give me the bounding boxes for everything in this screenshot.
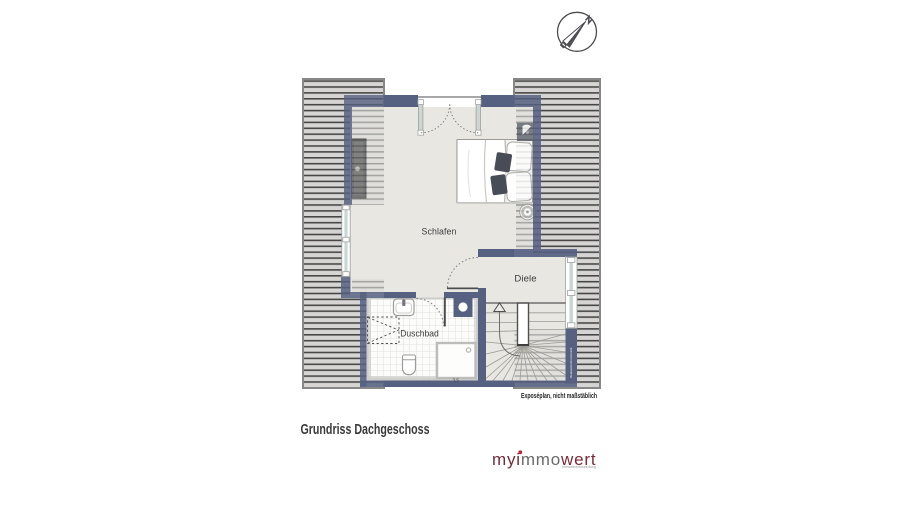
svg-text:Diele: Diele bbox=[514, 274, 536, 285]
svg-text:Schlafen: Schlafen bbox=[422, 227, 457, 238]
svg-text:Immobilienbewertung: Immobilienbewertung bbox=[562, 465, 596, 469]
svg-text:RealisationImmoGrafik: RealisationImmoGrafik bbox=[569, 347, 573, 378]
svg-text:Exposéplan, nicht maßstäblich: Exposéplan, nicht maßstäblich bbox=[521, 393, 597, 400]
svg-text:Grundriss Dachgeschoss: Grundriss Dachgeschoss bbox=[301, 422, 430, 438]
svg-text:Duschbad: Duschbad bbox=[400, 329, 439, 339]
svg-text:3,5: 3,5 bbox=[453, 378, 460, 383]
